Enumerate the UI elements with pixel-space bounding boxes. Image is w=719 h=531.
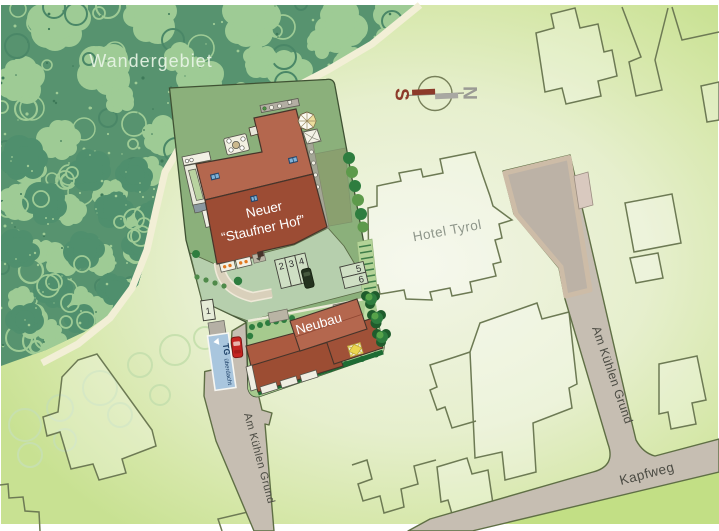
svg-text:N: N — [459, 86, 480, 100]
svg-text:S: S — [391, 88, 412, 101]
svg-text:TG: TG — [221, 343, 233, 356]
svg-text:Wandergebiet: Wandergebiet — [89, 51, 212, 71]
